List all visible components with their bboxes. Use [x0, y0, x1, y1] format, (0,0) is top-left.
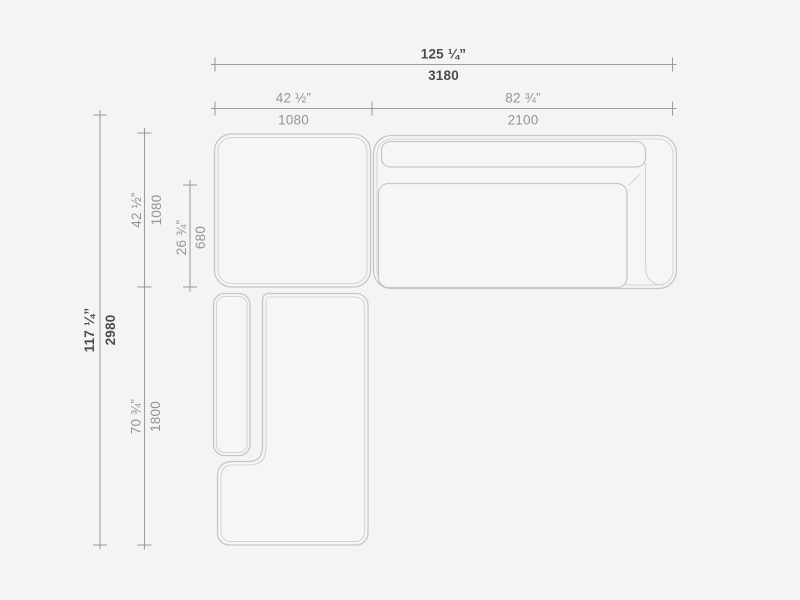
- overall-depth-metric-label: 2980: [103, 315, 118, 346]
- overall-width-metric-label: 3180: [428, 68, 459, 83]
- chaise-depth-imperial-label: 70 ¾”: [129, 399, 144, 435]
- upper-depth-imperial-label: 42 ½”: [129, 192, 144, 228]
- right-module-seat-cushion: [379, 184, 628, 288]
- drawing-canvas: 125 ¼” 3180 42 ½” 1080 82 ¾” 2100 117 ¼”…: [0, 0, 800, 600]
- dimension-group: [93, 58, 677, 550]
- chaise-armrest-outer: [214, 294, 251, 456]
- upper-right-width-metric-label: 2100: [508, 113, 539, 128]
- overall-width-imperial-label: 125 ¼”: [421, 47, 466, 62]
- seat-depth-metric-label: 680: [193, 226, 208, 249]
- right-module-back-cushion: [382, 142, 646, 168]
- upper-right-width-imperial-label: 82 ¾”: [505, 91, 541, 106]
- chaise-depth-metric-label: 1800: [148, 401, 163, 432]
- upper-left-width-metric-label: 1080: [278, 113, 309, 128]
- overall-depth-imperial-label: 117 ¼”: [82, 308, 97, 353]
- seat-depth-imperial-label: 26 ¾”: [174, 220, 189, 256]
- corner-module-outer: [215, 134, 371, 287]
- sofa-technical-drawing: 125 ¼” 3180 42 ½” 1080 82 ¾” 2100 117 ¼”…: [0, 0, 800, 600]
- upper-left-width-imperial-label: 42 ½”: [276, 91, 312, 106]
- sofa-outline-group: [214, 134, 677, 545]
- upper-depth-metric-label: 1080: [149, 195, 164, 226]
